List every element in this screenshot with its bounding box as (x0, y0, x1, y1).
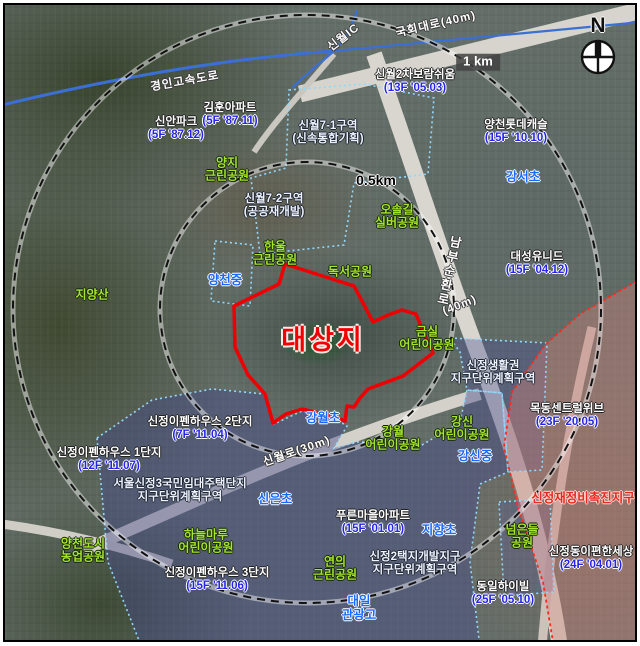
map-label-park: 오솔길실버공원 (375, 204, 419, 231)
compass-north-label: N (576, 15, 620, 36)
map-label-school: 양천중 (208, 273, 243, 287)
map-label-zone: 서울신정3국민임대주택단지지구단위계획구역 (113, 478, 246, 504)
map-label-park: 독서공원 (328, 265, 372, 278)
map-label-apt: 신정이펜하우스 2단지(7F '11.04) (148, 416, 253, 442)
map-label-apt: 신정이펜하우스 1단지(12F '11.07) (57, 447, 162, 473)
map-label-park: 한울근린공원 (253, 241, 297, 268)
map-label-apt: 양천롯데캐슬(15F '10.10) (484, 119, 547, 145)
map-label-park: 금실어린이공원 (399, 326, 454, 353)
map-label-park: 강신어린이공원 (434, 416, 489, 443)
map-label-zone: 신월7-1구역(신속통합기획) (292, 120, 363, 146)
map-label-school: 강월초 (306, 411, 341, 425)
map-label-apt: 신정이펜하우스 3단지(15F '11.06) (165, 567, 270, 593)
map-label-apt: 목동센트럴위브(23F '20.05) (530, 403, 604, 429)
map-label-school: 지향초 (422, 523, 457, 537)
map-label-apt: 신월2차보람쉬움(13F '05.03) (375, 69, 455, 95)
map-label-park: 양지근린공원 (205, 157, 249, 184)
map-label-park: 넘은들공원 (505, 524, 538, 551)
map-label-apt: 김훈아파트(5F '87.11) (202, 102, 257, 128)
map-label-road: 신월IC (326, 22, 363, 55)
map-label-park: 지양산 (75, 288, 108, 301)
map-label-park: 강월어린이공원 (365, 426, 420, 453)
map-label-apt: 대성유니드(15F '04.12) (506, 251, 568, 277)
map-figure: 대상지 경인고속도로신월IC국회대로(40m)남부순환로(40m)신월로(30m… (0, 0, 640, 646)
map-label-road-v: 남부순환로 (434, 234, 463, 308)
target-site-label: 대상지 (281, 325, 365, 355)
map-label-school: 강신중 (458, 449, 493, 463)
map-label-park: 양천도시농업공원 (61, 538, 105, 565)
map-label-zone: 신정생활권지구단위계획구역 (451, 360, 536, 386)
map-label-apt: 동일하이빌(25F '05.10) (472, 581, 534, 607)
map-label-zone: 신정2택지개발지구지구단위계획구역 (369, 551, 460, 577)
map-label-redzone: 신정재정비촉진지구 (531, 491, 635, 505)
scale-ring-label: 1 km (456, 54, 500, 71)
map-label-school: 강서초 (506, 170, 541, 184)
map-label-apt: 신안파크(5F '87.12) (148, 116, 204, 142)
map-label-road: 국회대로(40m) (395, 10, 478, 41)
map-labels-layer: 대상지 경인고속도로신월IC국회대로(40m)남부순환로(40m)신월로(30m… (5, 5, 635, 640)
map-label-road: 경인고속도로 (150, 70, 221, 95)
map-label-school: 신은초 (258, 492, 293, 506)
scale-ring-label: 0.5km (356, 173, 396, 189)
compass-icon (578, 36, 618, 78)
map-label-school: 대일관광고 (342, 594, 377, 622)
map-label-park: 하늘마루어린이공원 (178, 529, 233, 556)
map-label-zone: 신월7-2구역(공공재개발) (244, 193, 305, 219)
map-label-park: 연의근린공원 (313, 556, 357, 583)
map-label-apt: 신정동이편한세상(24F '04.01) (549, 546, 634, 572)
compass-rose: N (576, 15, 620, 85)
map-label-apt: 푸른마을아파트(15F '01.01) (336, 510, 410, 536)
map-label-road: 신월로(30m) (262, 434, 333, 469)
map-canvas: 대상지 경인고속도로신월IC국회대로(40m)남부순환로(40m)신월로(30m… (3, 3, 637, 642)
